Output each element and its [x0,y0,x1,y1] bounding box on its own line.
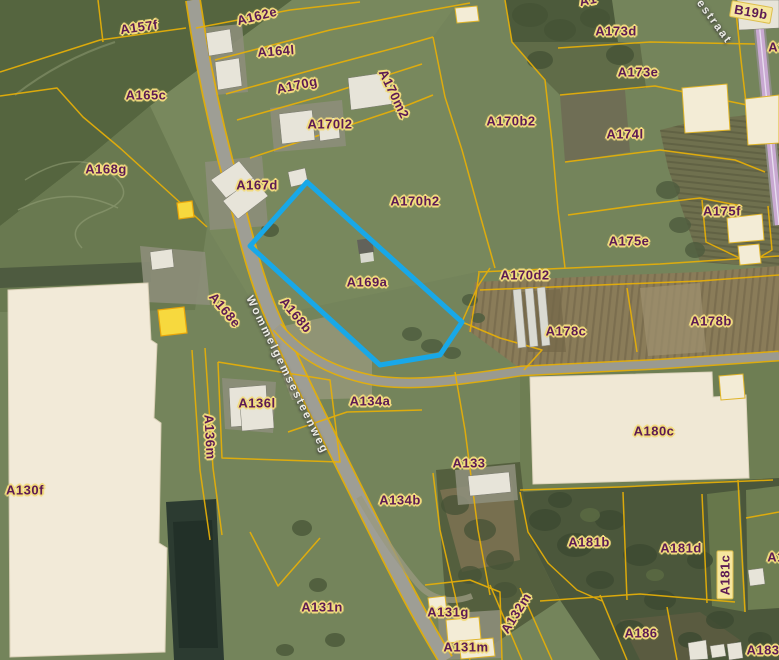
aerial-basemap [0,0,779,660]
greenhouses [513,287,550,348]
water-basin [166,499,224,660]
map-canvas[interactable]: Wommelgemsesteenwegestraat A157fA162eA16… [0,0,779,660]
